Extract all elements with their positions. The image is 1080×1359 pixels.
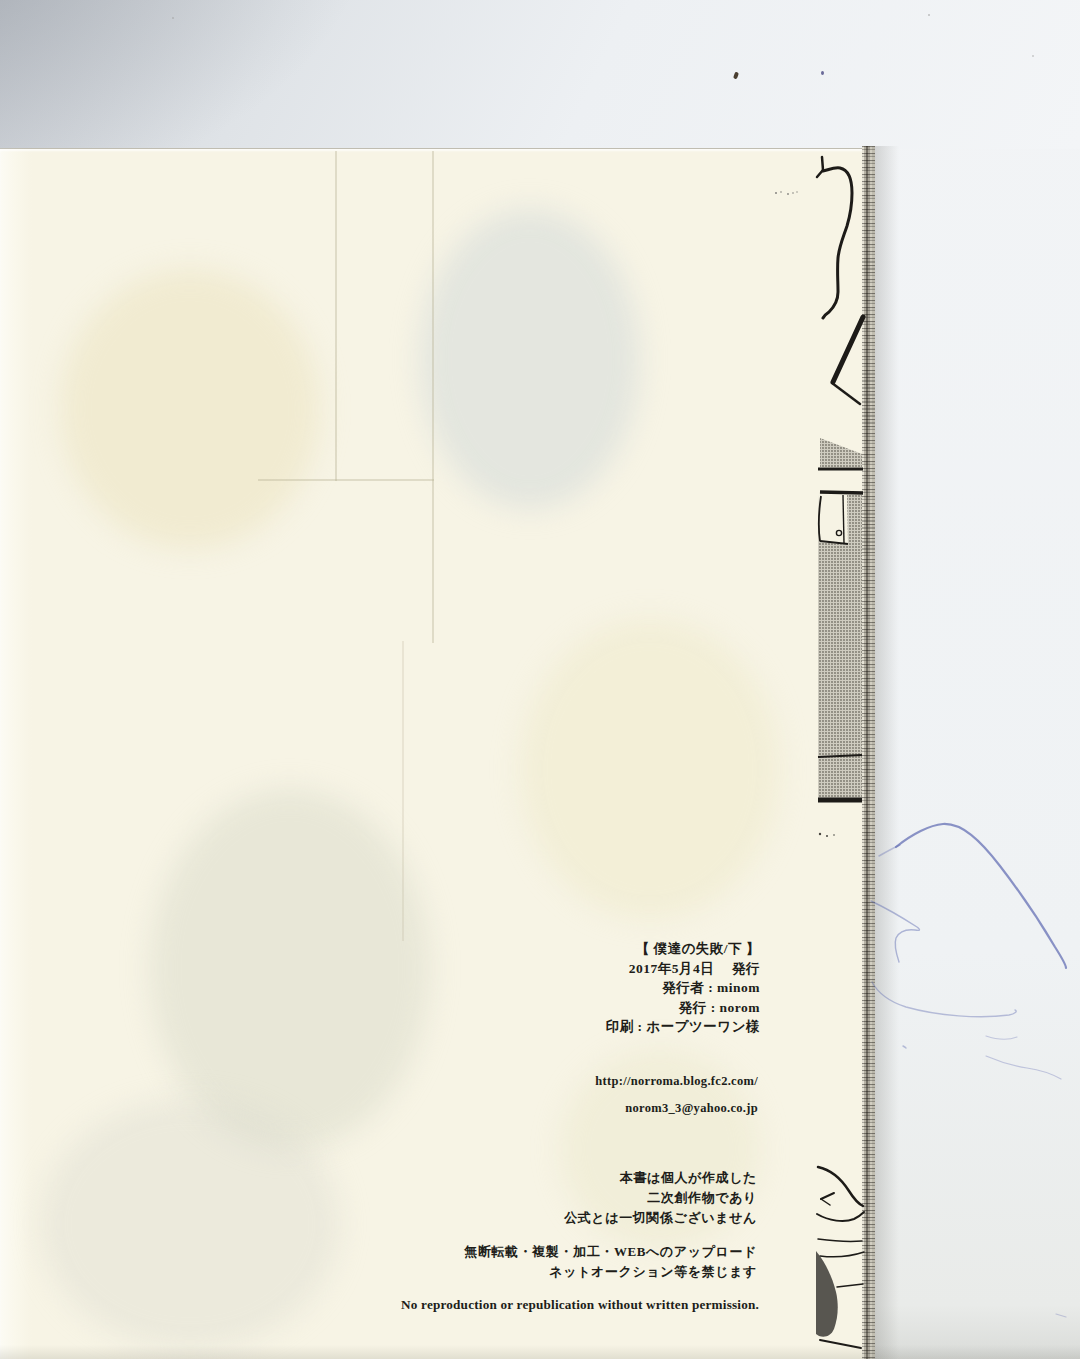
prohibition-block: 無断転載・複製・加工・WEBへのアップロード ネットオークション等を禁じます (464, 1242, 757, 1282)
manga-lineart-top (817, 157, 863, 404)
pencil-dot-marks (775, 191, 798, 195)
prohibition-line: ネットオークション等を禁じます (464, 1262, 757, 1282)
scan-bottom-shadow (0, 1345, 1080, 1359)
publisher-line: 発行者 : minom (606, 978, 760, 998)
artwork-and-pen-overlay (0, 0, 1080, 1359)
dust-speck (172, 17, 174, 19)
publish-date-line: 2017年5月4日 発行 (606, 959, 760, 979)
prohibition-line: 無断転載・複製・加工・WEBへのアップロード (464, 1242, 757, 1262)
email-address: norom3_3@yahoo.co.jp (595, 1095, 758, 1122)
colophon-block: 【 僕達の失敗/下 】 2017年5月4日 発行 発行者 : minom 発行 … (606, 939, 760, 1037)
contact-block: http://norroma.blog.fc2.com/ norom3_3@ya… (595, 1068, 758, 1122)
dust-speck (1032, 55, 1034, 57)
dust-speck (928, 14, 930, 16)
english-notice: No reproduction or republication without… (401, 1297, 759, 1313)
scanned-doujinshi-colophon-page: 【 僕達の失敗/下 】 2017年5月4日 発行 発行者 : minom 発行 … (0, 0, 1080, 1359)
disclaimer-line: 本書は個人が作成した (564, 1168, 757, 1188)
book-title-line: 【 僕達の失敗/下 】 (606, 939, 760, 959)
dust-speck (821, 71, 824, 75)
blog-url: http://norroma.blog.fc2.com/ (595, 1068, 758, 1095)
manga-lineart-bottom (816, 1167, 864, 1348)
pen-scribble (871, 824, 1066, 1317)
disclaimer-line: 公式とは一切関係ございません (564, 1208, 757, 1228)
screentone-panel (818, 438, 863, 837)
printer-line: 印刷 : ホープツーワン様 (606, 1017, 760, 1037)
disclaimer-block: 本書は個人が作成した 二次創作物であり 公式とは一切関係ございません (564, 1168, 757, 1227)
ink-dots (819, 833, 835, 837)
disclaimer-line: 二次創作物であり (564, 1188, 757, 1208)
circle-line: 発行 : norom (606, 998, 760, 1018)
